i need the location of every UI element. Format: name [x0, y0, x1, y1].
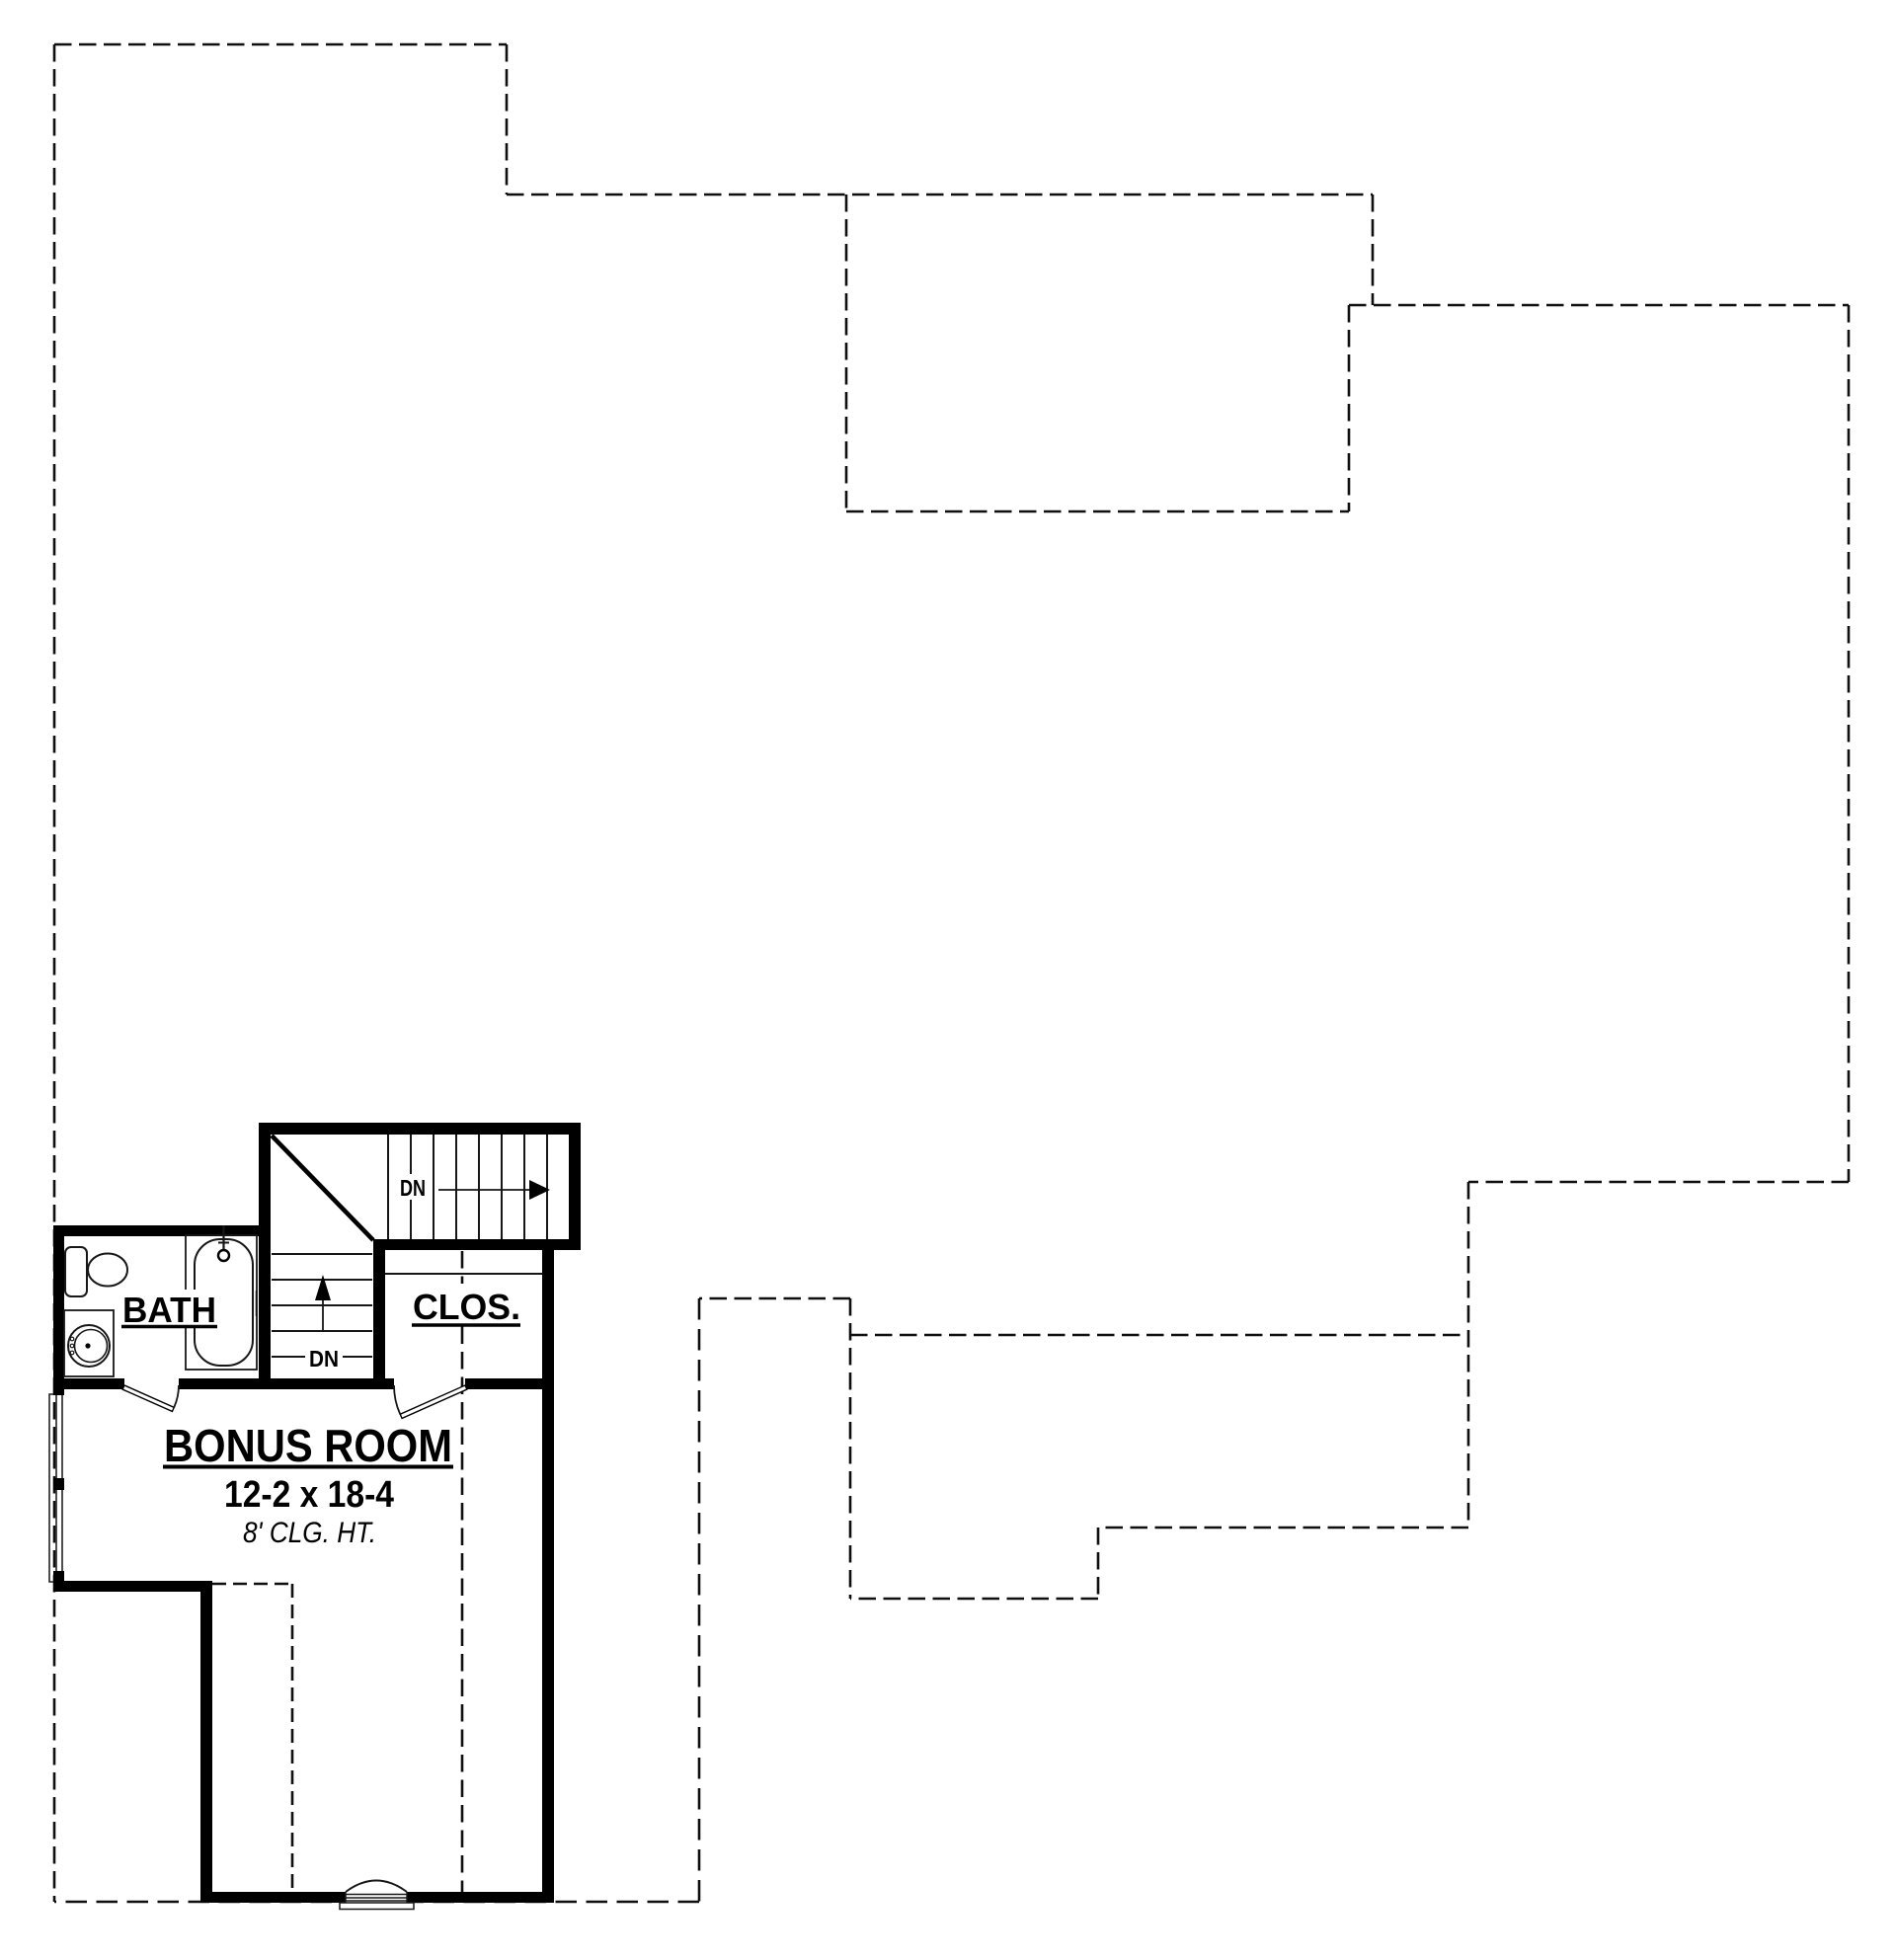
svg-text:BATH: BATH: [122, 1290, 216, 1330]
svg-text:DN: DN: [309, 1346, 339, 1372]
svg-text:DN: DN: [400, 1175, 426, 1201]
svg-text:12-2 x 18-4: 12-2 x 18-4: [224, 1474, 394, 1516]
svg-text:CLOS.: CLOS.: [413, 1287, 520, 1327]
svg-text:8' CLG. HT.: 8' CLG. HT.: [243, 1517, 376, 1549]
svg-text:BONUS ROOM: BONUS ROOM: [164, 1420, 452, 1471]
